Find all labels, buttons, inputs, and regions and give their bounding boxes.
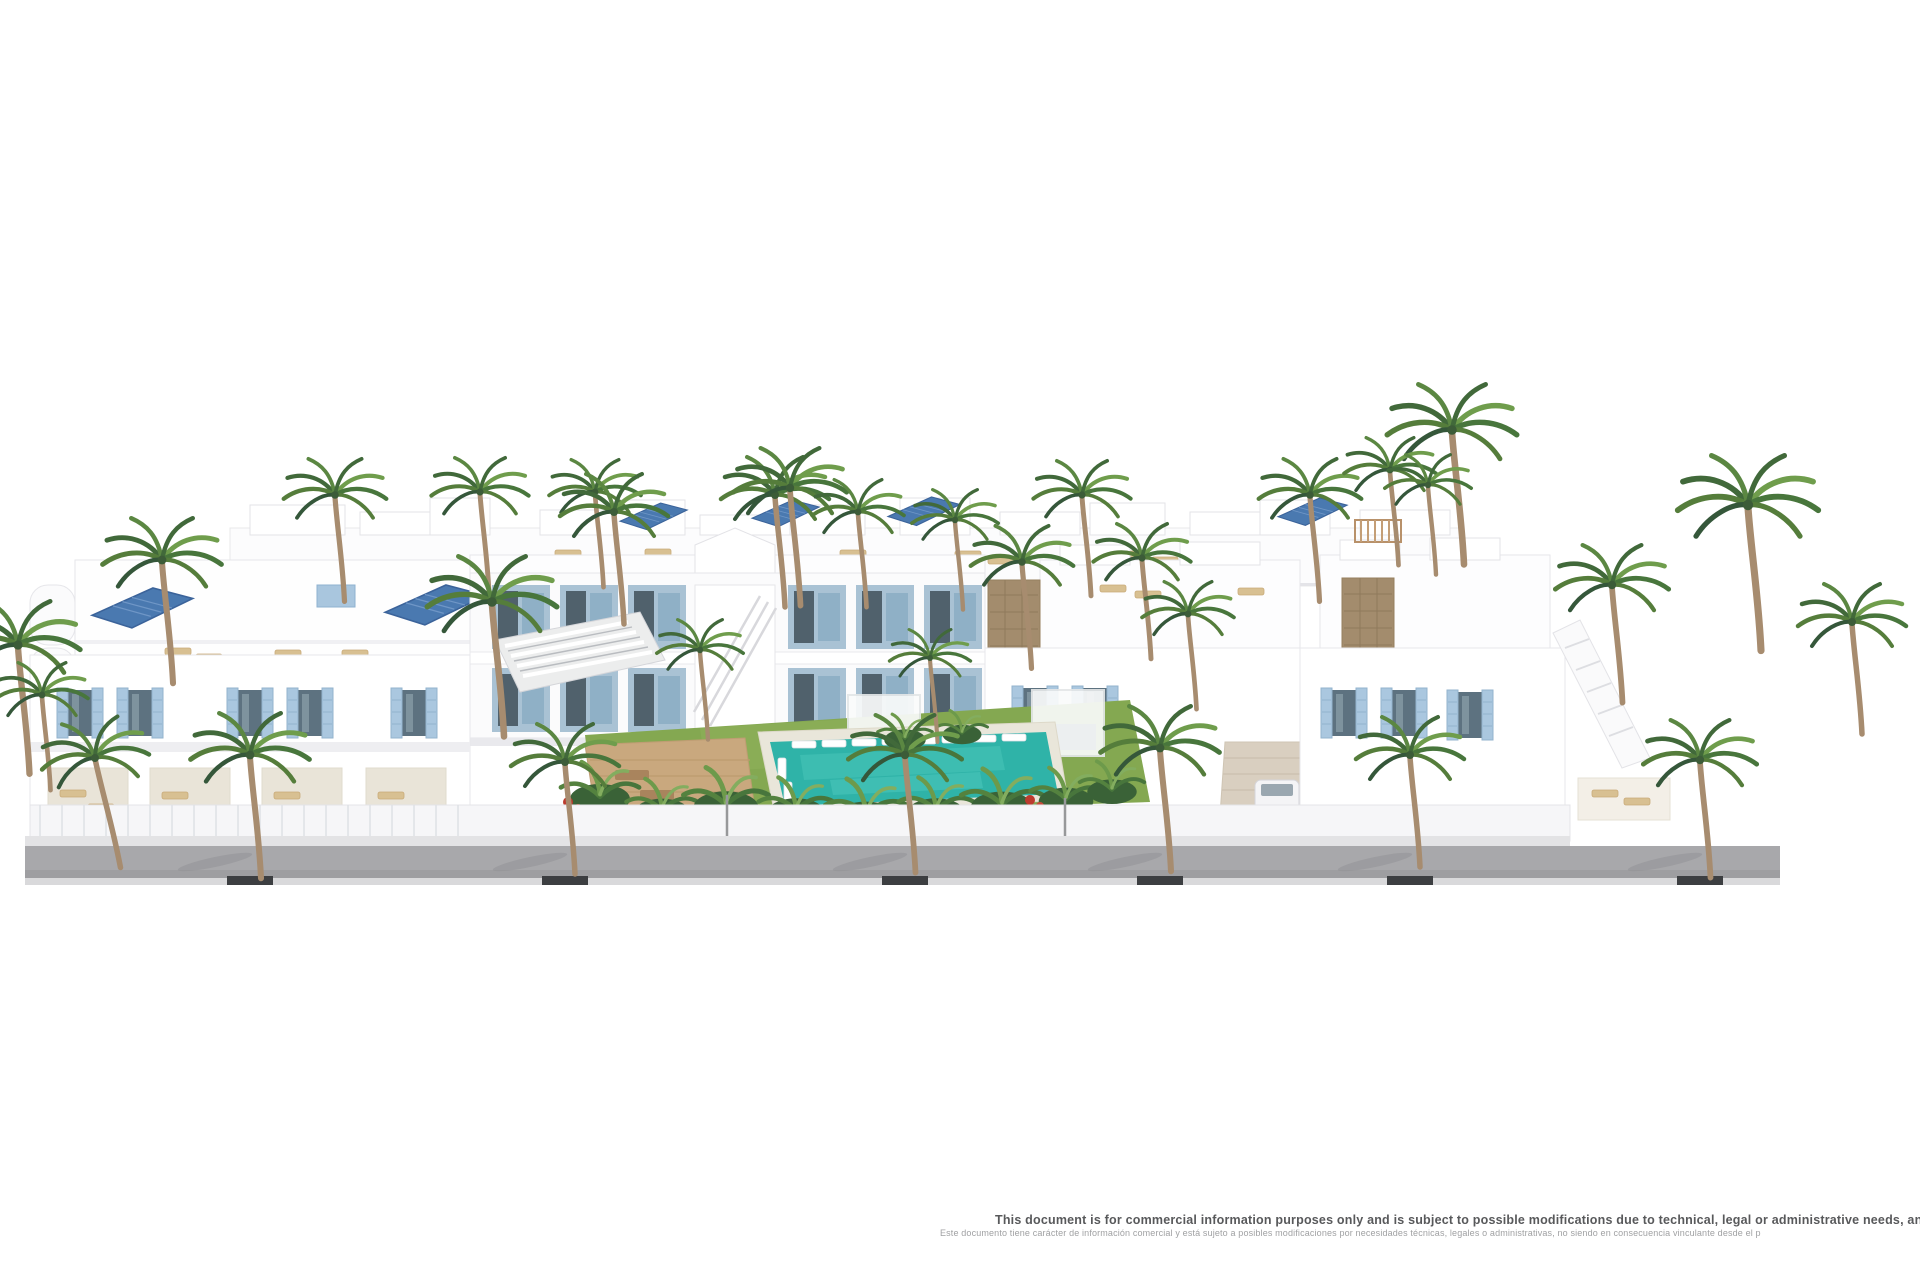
- render-canvas: This document is for commercial informat…: [0, 0, 1920, 1280]
- street: [25, 836, 1780, 885]
- external-staircase: [1553, 620, 1650, 768]
- complex-illustration: [0, 0, 1920, 1280]
